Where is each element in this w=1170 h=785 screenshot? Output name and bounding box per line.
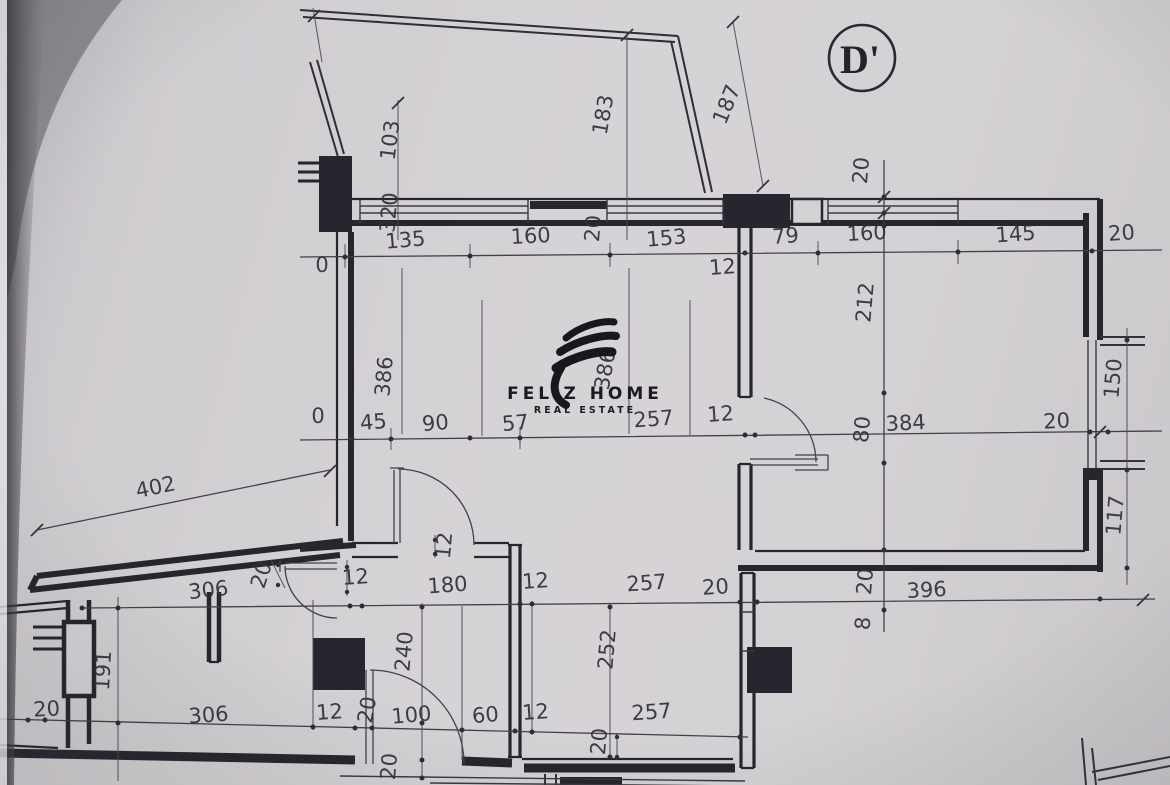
floorplan-photo: 1031831872032013516020153791601452001238… xyxy=(0,0,1170,785)
photo-edge-shadow xyxy=(0,0,1170,785)
floorplan-svg: 1031831872032013516020153791601452001238… xyxy=(0,0,1170,785)
